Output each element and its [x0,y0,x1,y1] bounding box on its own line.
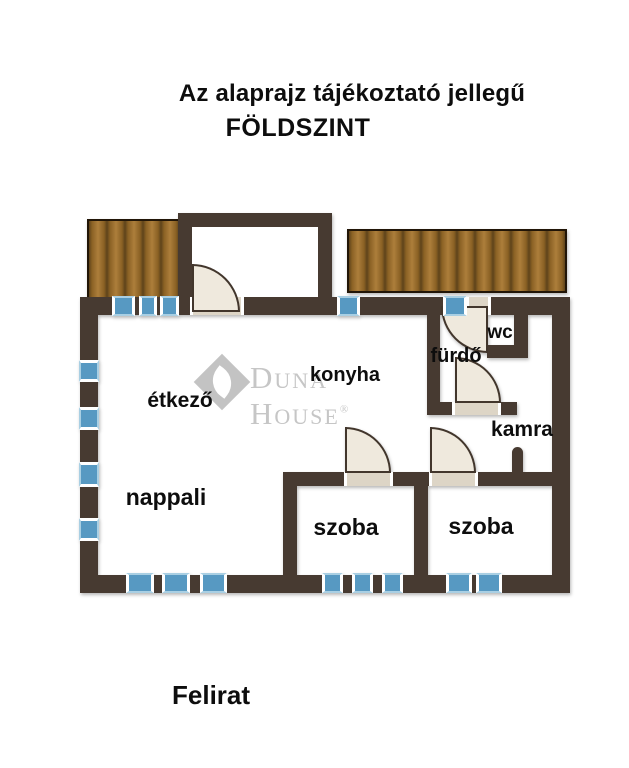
window [337,296,360,316]
registered-mark: ® [340,404,348,416]
wall-outer-right [552,297,570,593]
wall-bedroom1-left [283,472,297,593]
window [200,573,227,593]
wall-pantry-stub [512,447,523,477]
wall-outer-left [80,297,98,593]
window [79,518,99,541]
window [162,573,190,593]
window [112,296,135,316]
window [322,573,343,593]
room-label-living: nappali [126,484,207,511]
window [443,296,467,316]
caption-text: Felirat [172,680,250,711]
bedroom2-door-opening [429,472,478,486]
bedroom2-door-arc [430,427,476,473]
room-label-kitchen: konyha [310,364,380,387]
window [79,360,99,382]
bathroom-bottom-door-opening [452,402,501,415]
room-label-wc: wc [487,322,512,344]
window [476,573,502,593]
room-label-bedroom1: szoba [313,514,378,541]
bedroom1-door-opening [344,472,393,486]
window [352,573,373,593]
room-label-bathroom: fürdő [430,345,481,368]
room-label-pantry: kamra [491,418,553,442]
wall-bedroom-divider [414,472,428,593]
wall-wc-right [514,315,528,358]
floorplan-page: Az alaprajz tájékoztató jellegű FÖLDSZIN… [0,0,629,768]
deck-right [347,229,567,293]
room-label-bedroom2: szoba [448,513,513,540]
bedroom1-door-arc [345,427,391,473]
window [160,296,179,316]
window [382,573,403,593]
window [139,296,157,316]
deck-left [87,219,183,303]
window [79,462,99,487]
window [126,573,154,593]
room-label-dining: étkező [147,389,212,413]
window [446,573,472,593]
window [79,407,99,430]
